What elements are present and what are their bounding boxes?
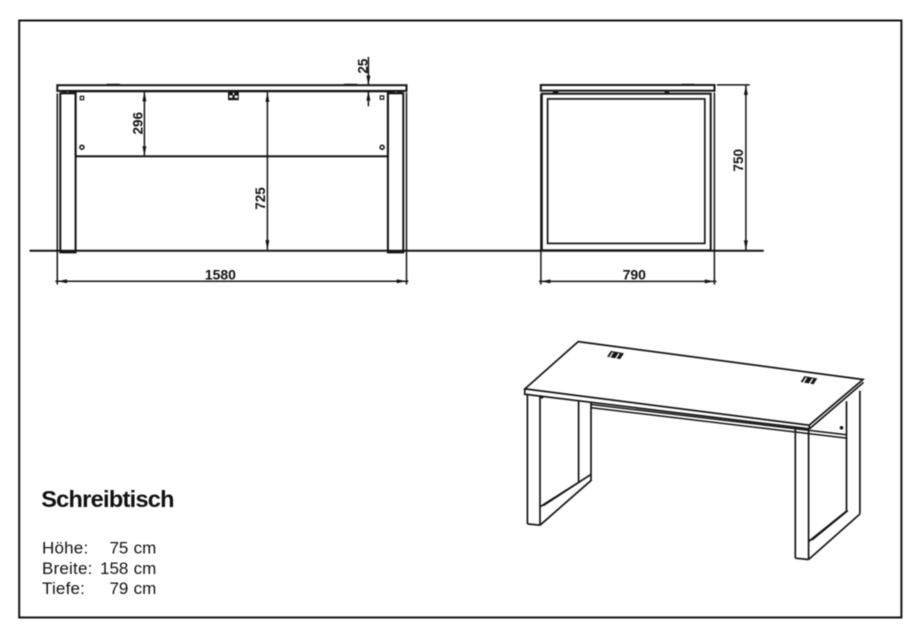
svg-text:Tiefe:: Tiefe:: [42, 579, 85, 598]
svg-text:25: 25: [356, 58, 371, 74]
svg-text:158: 158: [100, 559, 128, 578]
svg-text:296: 296: [130, 111, 145, 134]
svg-text:cm: cm: [134, 559, 157, 578]
svg-text:75: 75: [109, 539, 128, 558]
svg-text:Höhe:: Höhe:: [42, 539, 88, 558]
svg-text:1580: 1580: [205, 266, 236, 282]
svg-text:Schreibtisch: Schreibtisch: [41, 486, 174, 512]
svg-text:725: 725: [253, 187, 268, 210]
svg-text:cm: cm: [134, 539, 157, 558]
svg-text:790: 790: [623, 266, 647, 282]
svg-text:Breite:: Breite:: [42, 559, 93, 578]
svg-text:750: 750: [731, 149, 746, 172]
svg-text:cm: cm: [134, 579, 157, 598]
svg-text:79: 79: [109, 579, 128, 598]
